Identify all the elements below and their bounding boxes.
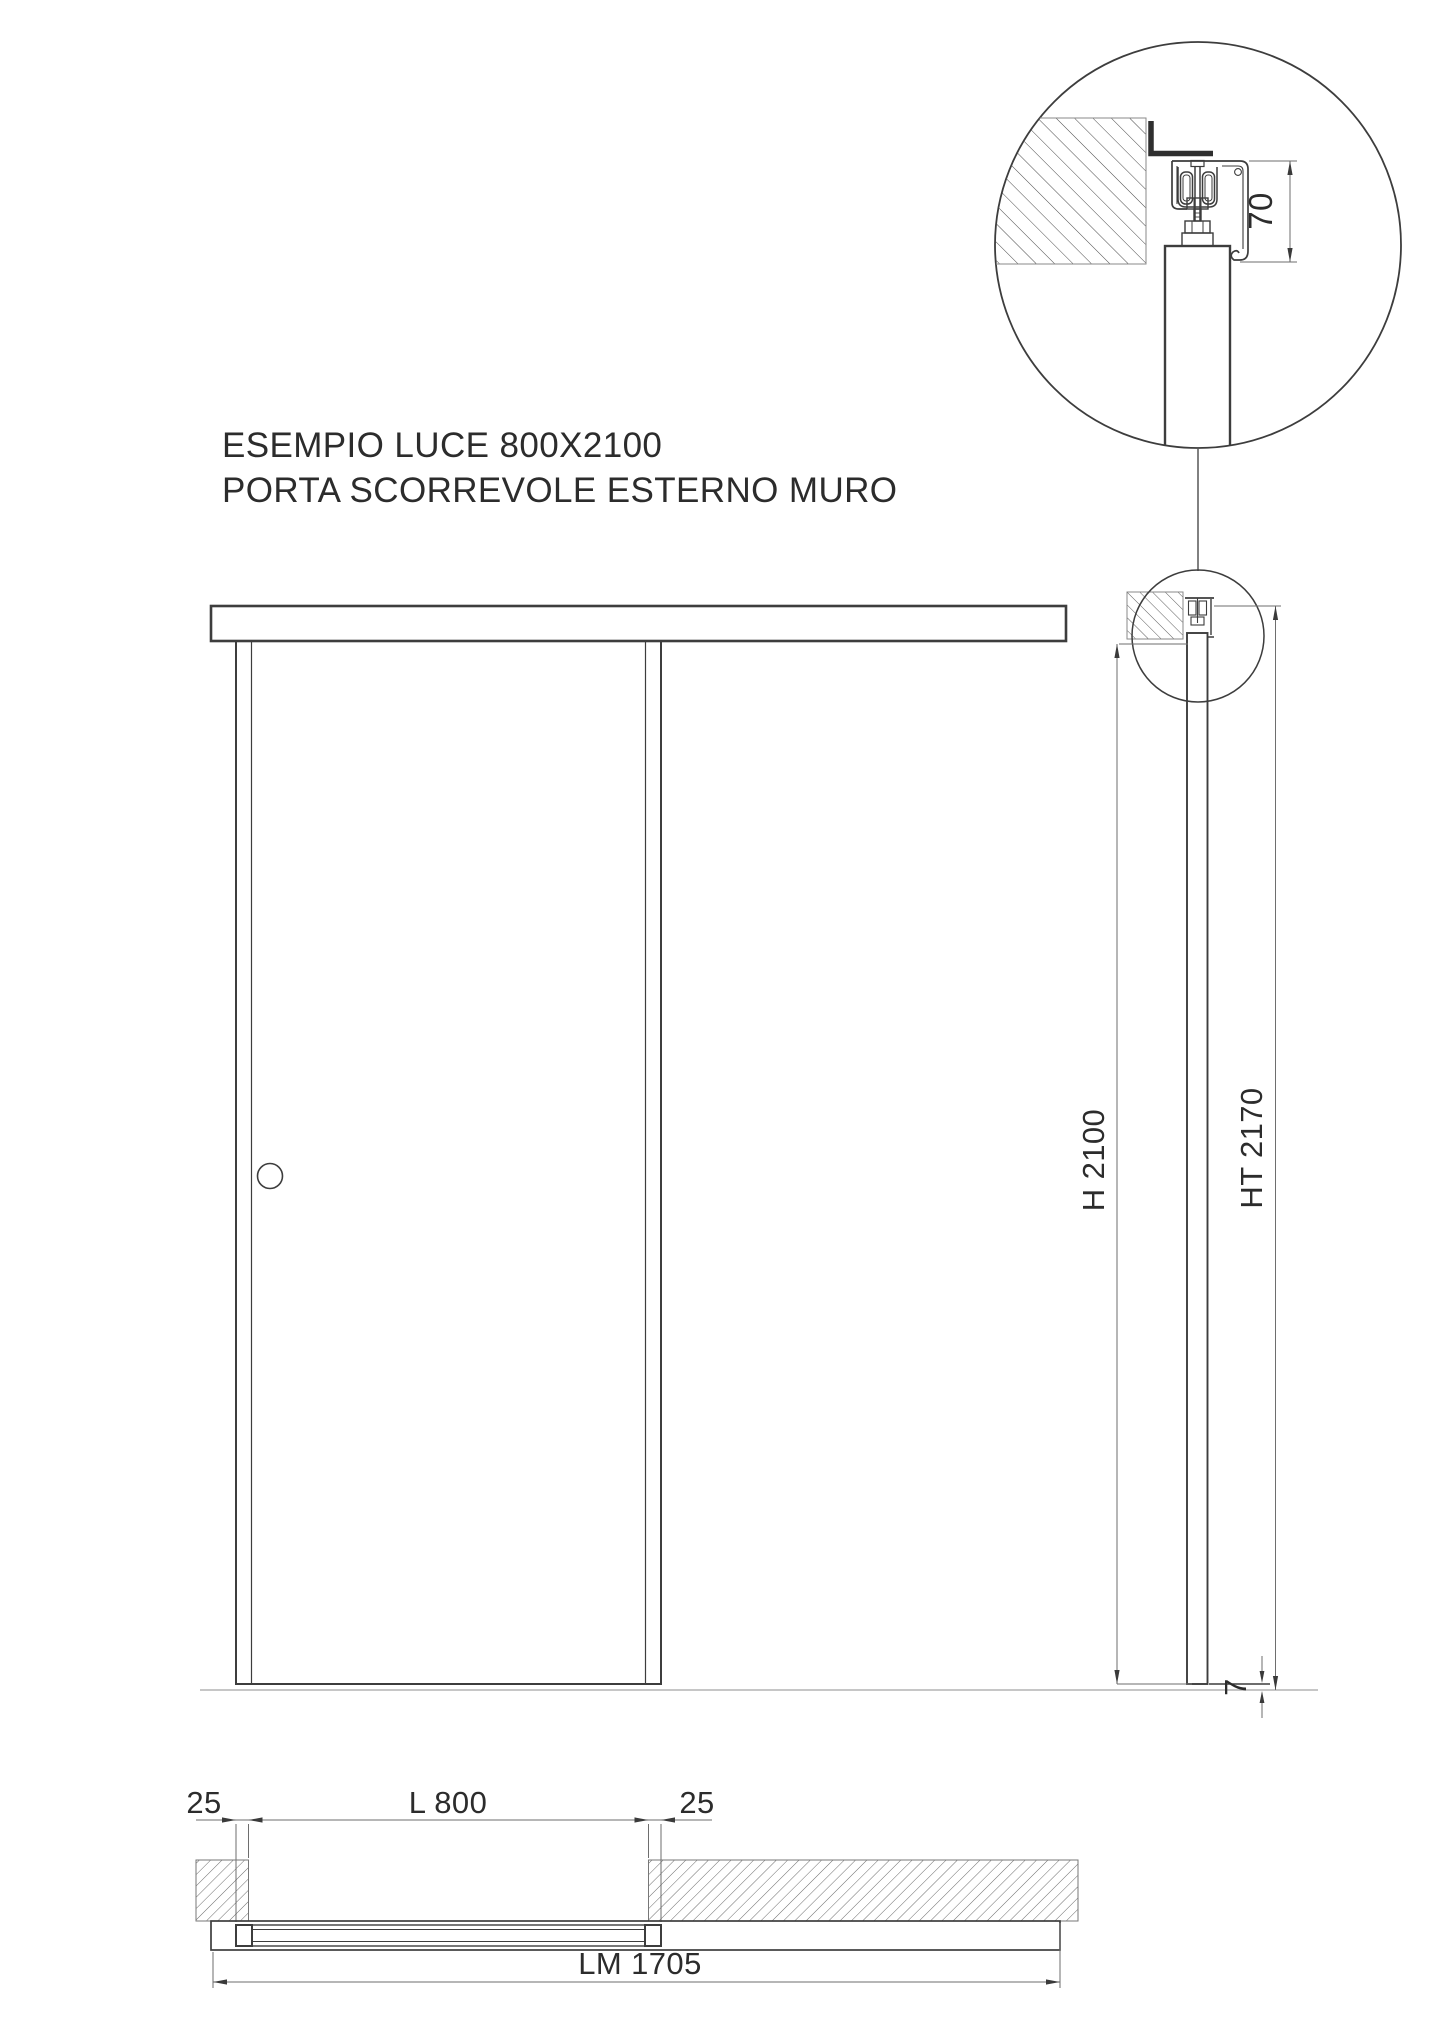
technical-drawing-sheet: ESEMPIO LUCE 800X2100 PORTA SCORREVOLE E… (0, 0, 1445, 2043)
elevation-door-leaf (236, 641, 661, 1684)
section-dim-ht2170: HT 2170 (1214, 606, 1281, 1690)
detail-hanger-bolt (1178, 198, 1217, 246)
plan-door-endcap-right (645, 1925, 661, 1946)
dim-70-label: 70 (1242, 192, 1279, 230)
title-block: ESEMPIO LUCE 800X2100 PORTA SCORREVOLE E… (222, 426, 897, 510)
elevation-door-handle (258, 1164, 283, 1189)
section-view: H 2100 HT 2170 7 (1076, 570, 1281, 1718)
elevation-view (200, 606, 1318, 1690)
dim-25-left-label: 25 (186, 1785, 221, 1820)
dim-7-label: 7 (1218, 1678, 1253, 1696)
dim-25-right-label: 25 (679, 1785, 714, 1820)
plan-dim-chain: 25 L 800 25 (186, 1785, 714, 1922)
plan-wall-left (196, 1860, 249, 1921)
plan-door-endcap-left (236, 1925, 252, 1946)
dim-h2100-label: H 2100 (1076, 1109, 1111, 1211)
detail-wall-hatch (985, 118, 1146, 264)
title-line-2: PORTA SCORREVOLE ESTERNO MURO (222, 471, 897, 510)
elevation-track-fascia (211, 606, 1066, 641)
section-door-panel (1187, 633, 1208, 1684)
plan-door-leaf (236, 1925, 661, 1946)
plan-dim-lm1705: LM 1705 (213, 1923, 1060, 1988)
dim-ht2170-label: HT 2170 (1234, 1087, 1269, 1208)
title-line-1: ESEMPIO LUCE 800X2100 (222, 426, 662, 465)
drawing-svg: ESEMPIO LUCE 800X2100 PORTA SCORREVOLE E… (0, 0, 1445, 2043)
detail-roller-carriage (1178, 161, 1217, 222)
section-dim-h2100: H 2100 (1076, 644, 1192, 1684)
section-dim-floor-gap: 7 (1209, 1656, 1270, 1718)
plan-wall-right (649, 1860, 1079, 1921)
dim-l800-label: L 800 (409, 1785, 487, 1820)
detail-bracket (1151, 121, 1213, 154)
detail-door-panel (1165, 246, 1230, 456)
detail-view-track: 70 (985, 42, 1401, 456)
dim-lm1705-label: LM 1705 (578, 1946, 701, 1981)
plan-view: 25 L 800 25 LM 1705 (186, 1785, 1078, 1988)
section-track-mini (1185, 598, 1214, 637)
